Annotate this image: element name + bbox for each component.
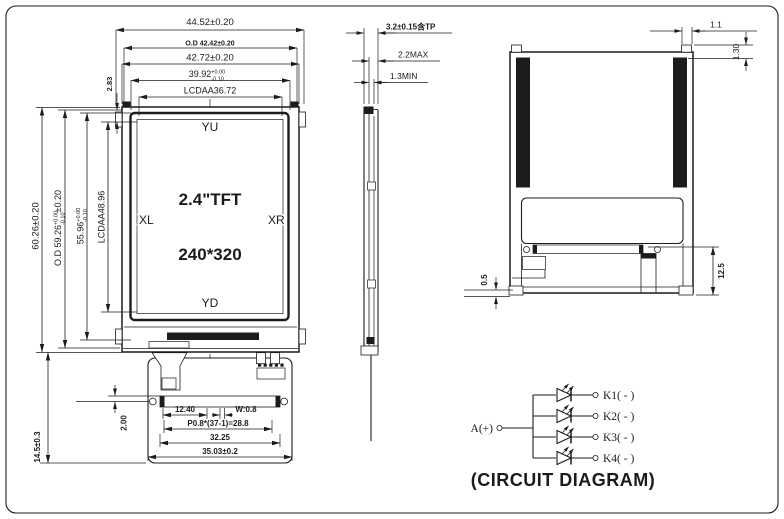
dim-contact-span: 32.25: [210, 433, 231, 442]
electrode-label-xl: XL: [139, 213, 154, 227]
side-profile: [361, 107, 378, 442]
cathode-label-3: K3( - ): [603, 432, 634, 444]
back-outline: [510, 52, 693, 293]
finger-end-right: [276, 396, 281, 407]
back-foot-right: [679, 286, 693, 295]
dim-lead-in: 12.40: [175, 405, 196, 414]
side-foot: [361, 346, 378, 355]
left-upper-tab: [116, 112, 123, 127]
side-tick-upper: [368, 182, 376, 190]
back-tab-right: [682, 45, 692, 52]
dim-finger-width: W:0.8: [235, 405, 257, 414]
dim-edge-gap: 0.5: [480, 274, 489, 286]
drawing-sheet: YU XL XR YD 2.4"TFT 240*320: [0, 0, 784, 519]
cathode-terminal-1: [593, 392, 598, 397]
back-tab-left: [512, 45, 522, 52]
tape-strip-right: [673, 58, 687, 188]
fpc-right-tail-1: [257, 353, 266, 364]
dim-total-thickness: 3.2±0.15含TP: [386, 22, 436, 32]
back-foot-left: [509, 286, 523, 295]
side-dims: 3.2±0.15含TP 2.2MAX 1.3MIN: [346, 22, 452, 105]
dim-od-width: O.D 42.42±0.20: [185, 41, 234, 48]
fpc-right-tail-2: [271, 353, 280, 364]
anode-terminal: [497, 425, 502, 430]
cathode-label-2: K2( - ): [603, 411, 634, 423]
finger-end-left: [160, 396, 165, 407]
cathode-label-1: K1( - ): [603, 390, 634, 402]
dim-tab-height: 1.30: [731, 43, 741, 60]
side-bottom-mark: [367, 337, 375, 344]
display-size-label: 2.4"TFT: [179, 190, 242, 209]
left-lower-tab: [116, 329, 123, 344]
dim-aa-width: LCDAA36.72: [184, 86, 237, 96]
dim-fpc-width: 35.03±0.2: [202, 447, 238, 456]
cathode-terminal-3: [593, 434, 598, 439]
led-icon: [557, 405, 574, 423]
led-icon: [557, 447, 574, 465]
electrode-label-yd: YD: [202, 296, 219, 310]
dim-tab-width: 1.1: [710, 20, 722, 30]
led-branch-4: K4( - ): [533, 447, 634, 465]
front-view: YU XL XR YD 2.4"TFT 240*320: [31, 17, 306, 463]
dim-module-width: 42.72±0.20: [186, 53, 233, 64]
alignment-hole-left: [149, 398, 156, 405]
electrode-label-xr: XR: [268, 213, 285, 227]
dim-fold-height: 12.5: [717, 263, 726, 279]
right-lower-tab: [299, 329, 306, 344]
resolution-label: 240*320: [178, 245, 241, 264]
fpc-fold-outline: [522, 198, 684, 244]
display-frame: [131, 113, 289, 320]
dim-aa-height: LCDAA48.96: [97, 191, 107, 244]
dim-overall-height: 60.26±0.20: [31, 202, 42, 249]
back-hole-right: [655, 247, 661, 253]
dim-od-height: O.D 59.26+0.00-0.10±0.20: [53, 190, 67, 266]
dim-top-margin: 2.83: [105, 77, 114, 92]
right-upper-tab: [299, 112, 306, 127]
electrode-label-yu: YU: [202, 120, 219, 134]
back-body: [509, 45, 693, 295]
driver-ic-bar: [167, 333, 259, 341]
dim-pin-offset: 2.00: [120, 415, 129, 431]
cathode-label-4: K4( - ): [603, 453, 634, 465]
led-icon: [557, 384, 574, 402]
led-branch-1: K1( - ): [533, 384, 634, 402]
dim-overall-width: 44.52±0.20: [186, 17, 233, 28]
anode-label: A(+): [471, 423, 494, 435]
tape-strip-left: [516, 58, 530, 188]
cathode-terminal-2: [593, 413, 598, 418]
dim-min-thickness: 1.3MIN: [390, 71, 417, 81]
side-top-cap: [364, 107, 374, 115]
led-branch-2: K2( - ): [533, 405, 634, 423]
dim-fpc-length: 14.5±0.3: [33, 431, 42, 463]
back-view: 1.1 1.30 12.5 0.5: [464, 20, 757, 310]
led-icon: [557, 426, 574, 444]
side-view: 3.2±0.15含TP 2.2MAX 1.3MIN: [346, 22, 452, 442]
cathode-terminal-4: [593, 455, 598, 460]
circuit-diagram: A(+) K1( - ): [471, 384, 656, 490]
back-hole-left: [524, 247, 530, 253]
alignment-hole-right: [281, 398, 288, 405]
dim-max-thickness: 2.2MAX: [398, 50, 429, 60]
circuit-caption: (CIRCUIT DIAGRAM): [471, 470, 655, 490]
side-tick-lower: [368, 280, 376, 288]
led-branch-3: K3( - ): [533, 426, 634, 444]
dim-pitch: P0.8*(37-1)=28.8: [187, 419, 249, 428]
drawing-canvas: YU XL XR YD 2.4"TFT 240*320: [0, 0, 784, 519]
